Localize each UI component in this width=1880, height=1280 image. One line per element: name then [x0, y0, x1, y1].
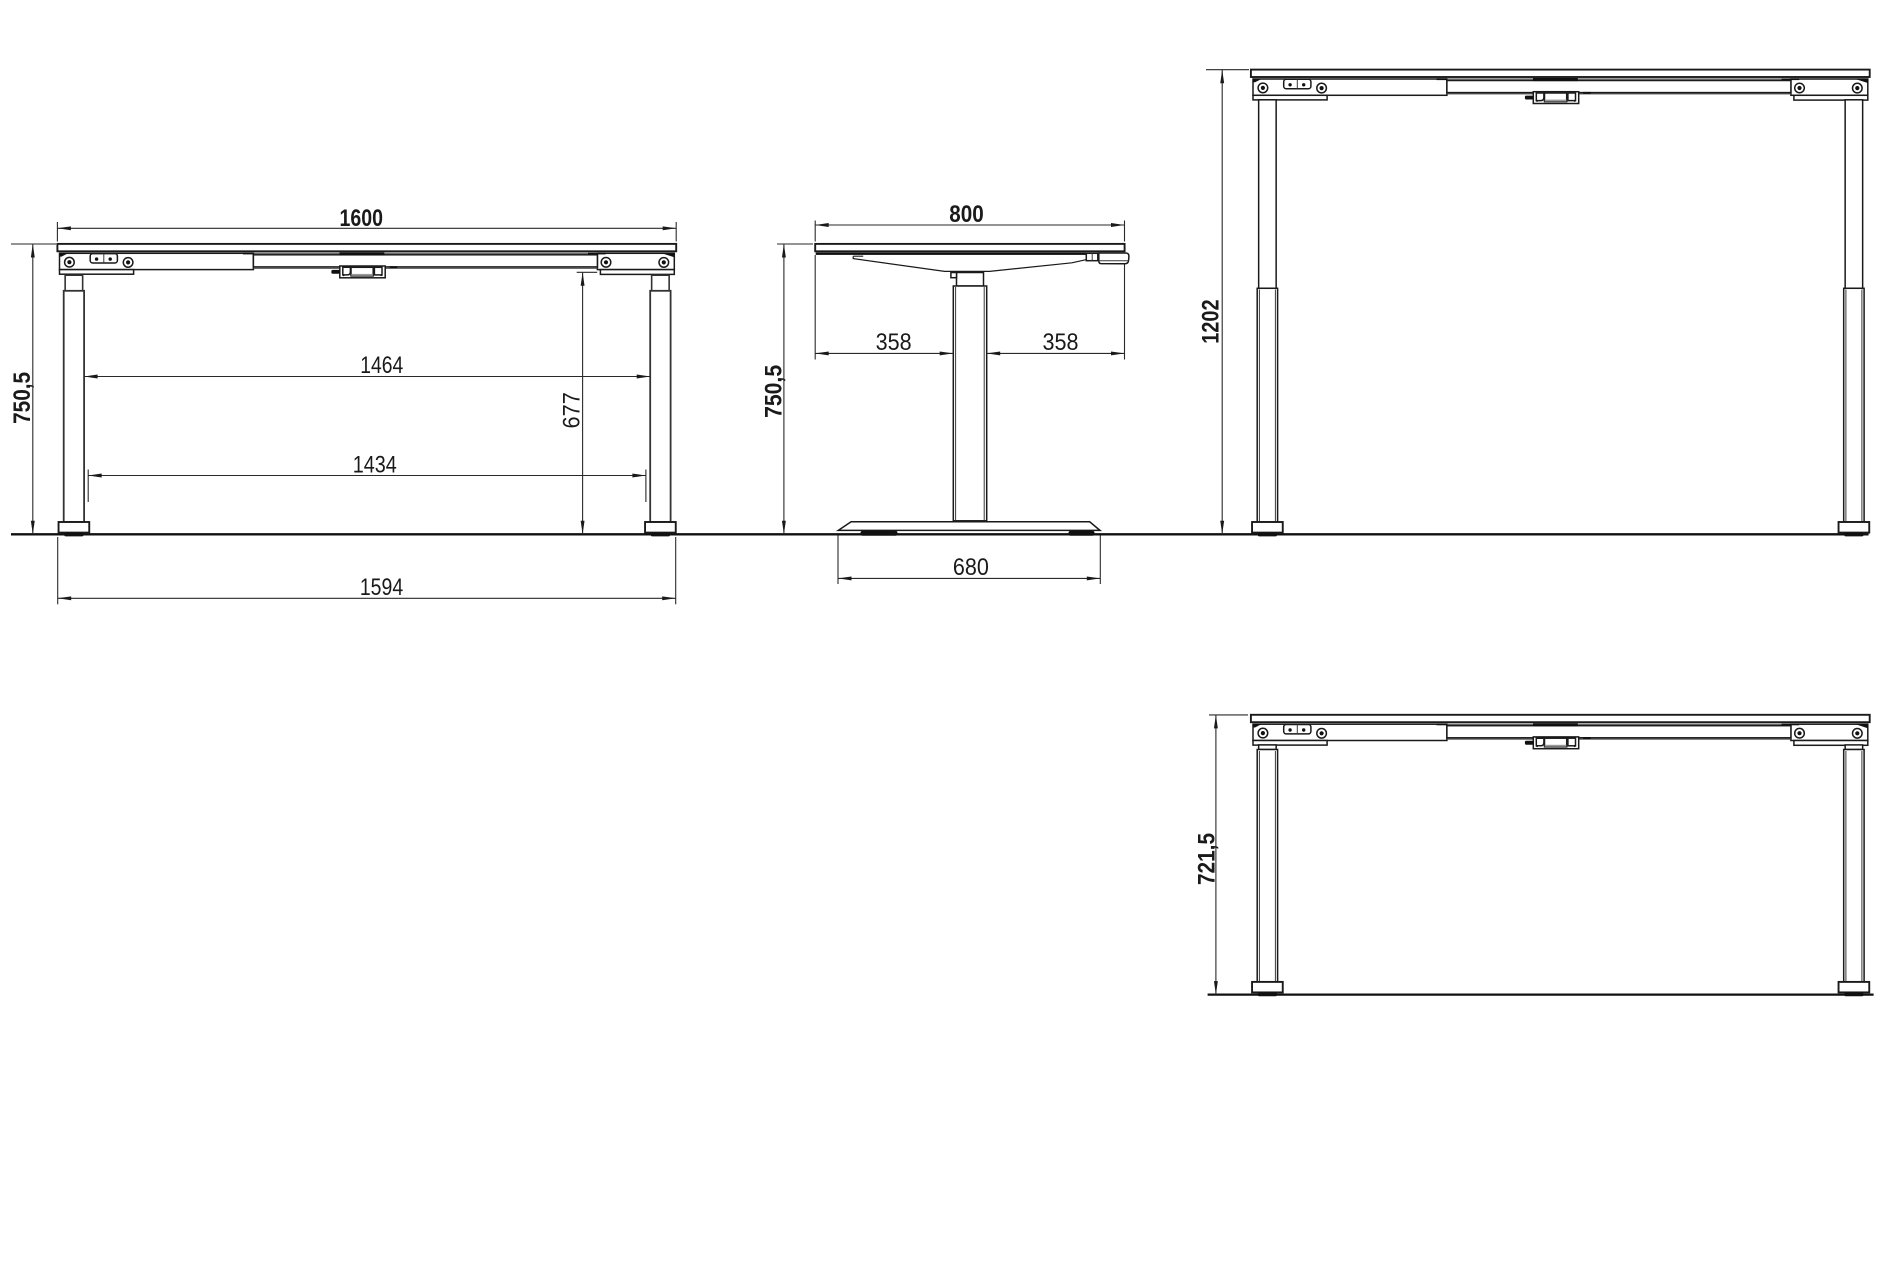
svg-text:750,5: 750,5 — [9, 372, 36, 424]
svg-text:1202: 1202 — [1198, 299, 1225, 343]
svg-text:800: 800 — [949, 201, 984, 228]
svg-text:358: 358 — [1043, 329, 1079, 356]
svg-text:1464: 1464 — [360, 352, 403, 379]
svg-text:677: 677 — [558, 392, 585, 428]
svg-text:358: 358 — [876, 329, 912, 356]
svg-text:680: 680 — [953, 554, 989, 581]
svg-text:1434: 1434 — [353, 451, 397, 478]
svg-text:1594: 1594 — [360, 574, 403, 601]
